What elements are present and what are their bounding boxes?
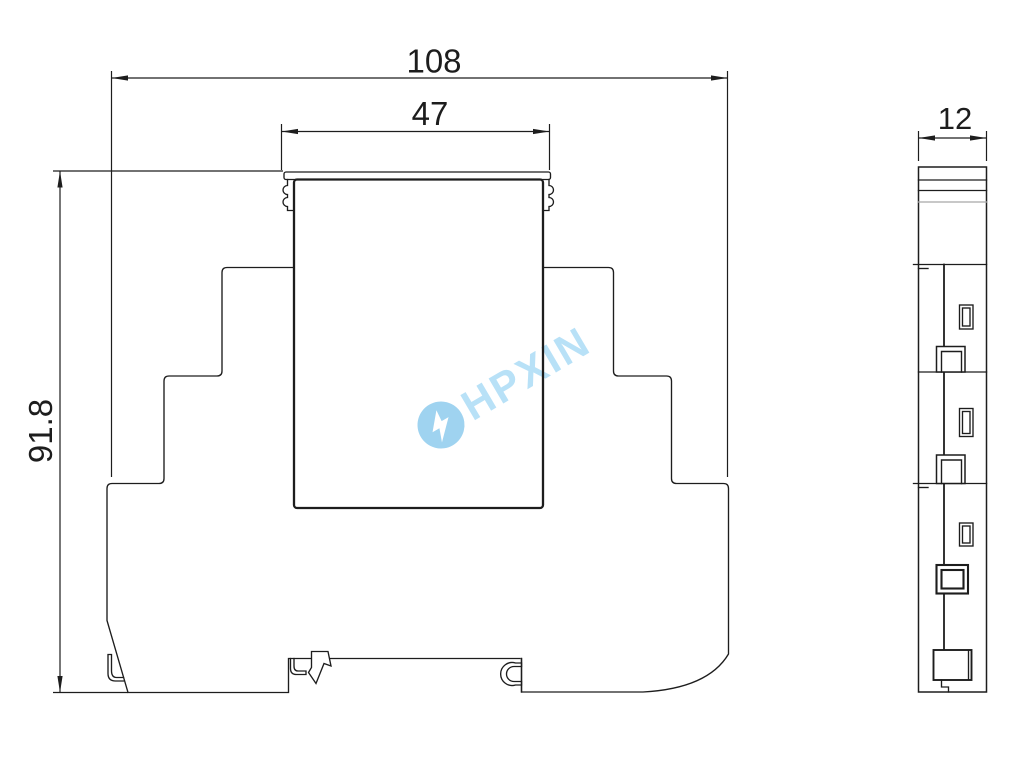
arrowhead-right: [533, 129, 550, 134]
terminal-slot-3: [960, 523, 974, 546]
arrowhead-left: [112, 75, 129, 80]
din-clip-block: [934, 650, 972, 692]
center-face: [294, 180, 543, 509]
dimension-47: 47: [282, 95, 550, 170]
cap-right-notch-stub: [543, 180, 554, 211]
c-clip: [501, 663, 522, 686]
arrowhead-right: [970, 135, 987, 140]
dim-text-91-8: 91.8: [22, 399, 59, 463]
clip-square-2: [937, 455, 966, 484]
clip-square-1: [937, 347, 966, 373]
screw-square: [937, 565, 969, 594]
terminal-slot-1: [960, 305, 974, 329]
technical-drawing-page: HPXIN: [0, 0, 1031, 762]
dim-text-12: 12: [938, 101, 972, 136]
watermark-text: HPXIN: [453, 317, 598, 429]
din-latch-arrow: [309, 652, 332, 684]
dim-text-108: 108: [406, 43, 461, 80]
din-latch-bracket: [291, 659, 307, 675]
cap-left-notch-stub: [283, 180, 294, 211]
technical-drawing: HPXIN: [0, 0, 1031, 762]
dimension-91-8: 91.8: [22, 171, 283, 693]
body-outline-left: [107, 268, 520, 693]
side-view: [914, 167, 987, 692]
front-view: [107, 172, 729, 693]
arrowhead-right: [711, 75, 728, 80]
arrowhead-left: [282, 129, 299, 134]
arrowhead-left: [919, 135, 936, 140]
dim-text-47: 47: [412, 95, 449, 132]
side-outline: [919, 167, 987, 692]
arrowhead-bottom: [57, 676, 62, 693]
terminal-slot-2: [960, 409, 974, 437]
watermark: HPXIN: [408, 317, 599, 457]
dimension-12: 12: [919, 101, 987, 161]
arrowhead-top: [57, 171, 62, 188]
